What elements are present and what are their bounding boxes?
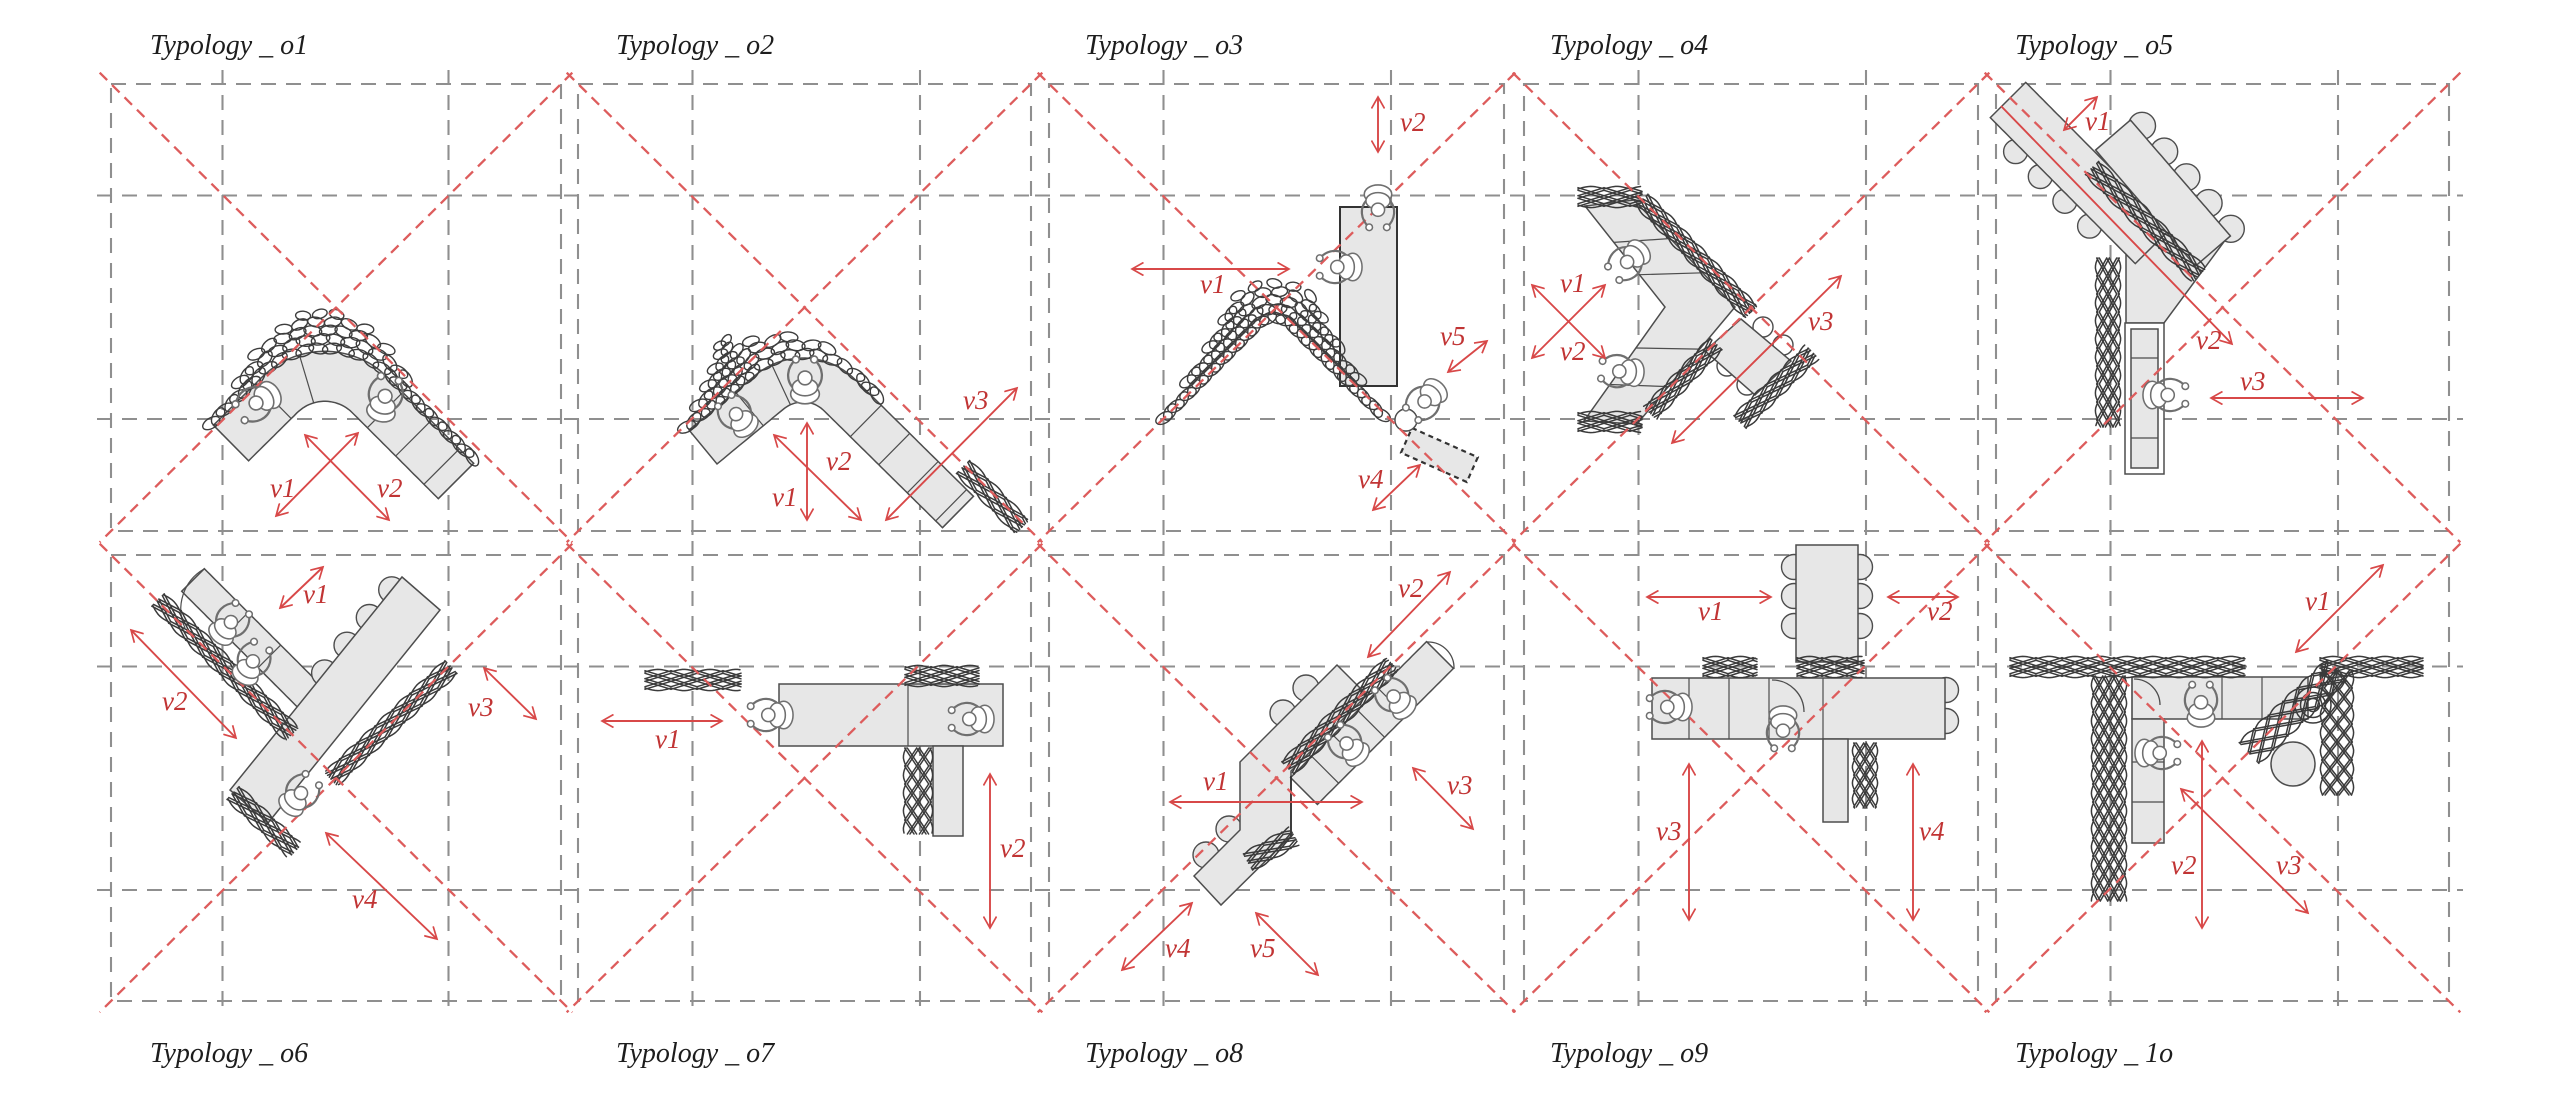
svg-text:v2: v2 — [2196, 325, 2221, 355]
svg-text:v3: v3 — [1656, 816, 1681, 846]
svg-text:v1: v1 — [2305, 586, 2330, 616]
svg-text:v3: v3 — [1808, 306, 1833, 336]
svg-text:v3: v3 — [2240, 366, 2265, 396]
svg-text:v1: v1 — [270, 473, 295, 503]
svg-text:v2: v2 — [2171, 850, 2196, 880]
svg-text:Typology _ o1: Typology _ o1 — [150, 30, 308, 61]
svg-text:Typology _ o5: Typology _ o5 — [2015, 30, 2173, 61]
svg-text:v4: v4 — [1165, 933, 1190, 963]
svg-text:v1: v1 — [2085, 106, 2110, 136]
svg-text:Typology _ o6: Typology _ o6 — [150, 1038, 308, 1069]
svg-text:v4: v4 — [1919, 816, 1944, 846]
svg-text:v2: v2 — [1560, 336, 1585, 366]
svg-text:v1: v1 — [303, 579, 328, 609]
svg-text:Typology _ 1o: Typology _ 1o — [2015, 1038, 2173, 1069]
svg-text:Typology _ o9: Typology _ o9 — [1550, 1038, 1708, 1069]
svg-text:v1: v1 — [1200, 269, 1225, 299]
svg-text:Typology _ o3: Typology _ o3 — [1085, 30, 1243, 61]
svg-text:v1: v1 — [1698, 596, 1723, 626]
svg-text:Typology _ o2: Typology _ o2 — [616, 30, 774, 61]
svg-text:v3: v3 — [2276, 850, 2301, 880]
svg-text:v1: v1 — [1203, 766, 1228, 796]
svg-text:v3: v3 — [1447, 770, 1472, 800]
svg-text:v3: v3 — [963, 385, 988, 415]
svg-text:v2: v2 — [1398, 573, 1423, 603]
svg-text:Typology _ o7: Typology _ o7 — [616, 1038, 775, 1069]
svg-text:v2: v2 — [826, 446, 851, 476]
svg-text:Typology _ o4: Typology _ o4 — [1550, 30, 1708, 61]
svg-text:v2: v2 — [1400, 107, 1425, 137]
svg-text:v1: v1 — [655, 724, 680, 754]
svg-text:v3: v3 — [468, 692, 493, 722]
svg-text:v5: v5 — [1250, 933, 1275, 963]
svg-text:v2: v2 — [377, 473, 402, 503]
svg-text:v1: v1 — [772, 482, 797, 512]
svg-text:v2: v2 — [1000, 833, 1025, 863]
svg-text:v1: v1 — [1560, 268, 1585, 298]
svg-text:v4: v4 — [352, 884, 377, 914]
svg-text:v5: v5 — [1440, 321, 1465, 351]
svg-text:v4: v4 — [1358, 464, 1383, 494]
svg-text:Typology _ o8: Typology _ o8 — [1085, 1038, 1243, 1069]
svg-text:v2: v2 — [162, 686, 187, 716]
svg-text:v2: v2 — [1927, 596, 1952, 626]
